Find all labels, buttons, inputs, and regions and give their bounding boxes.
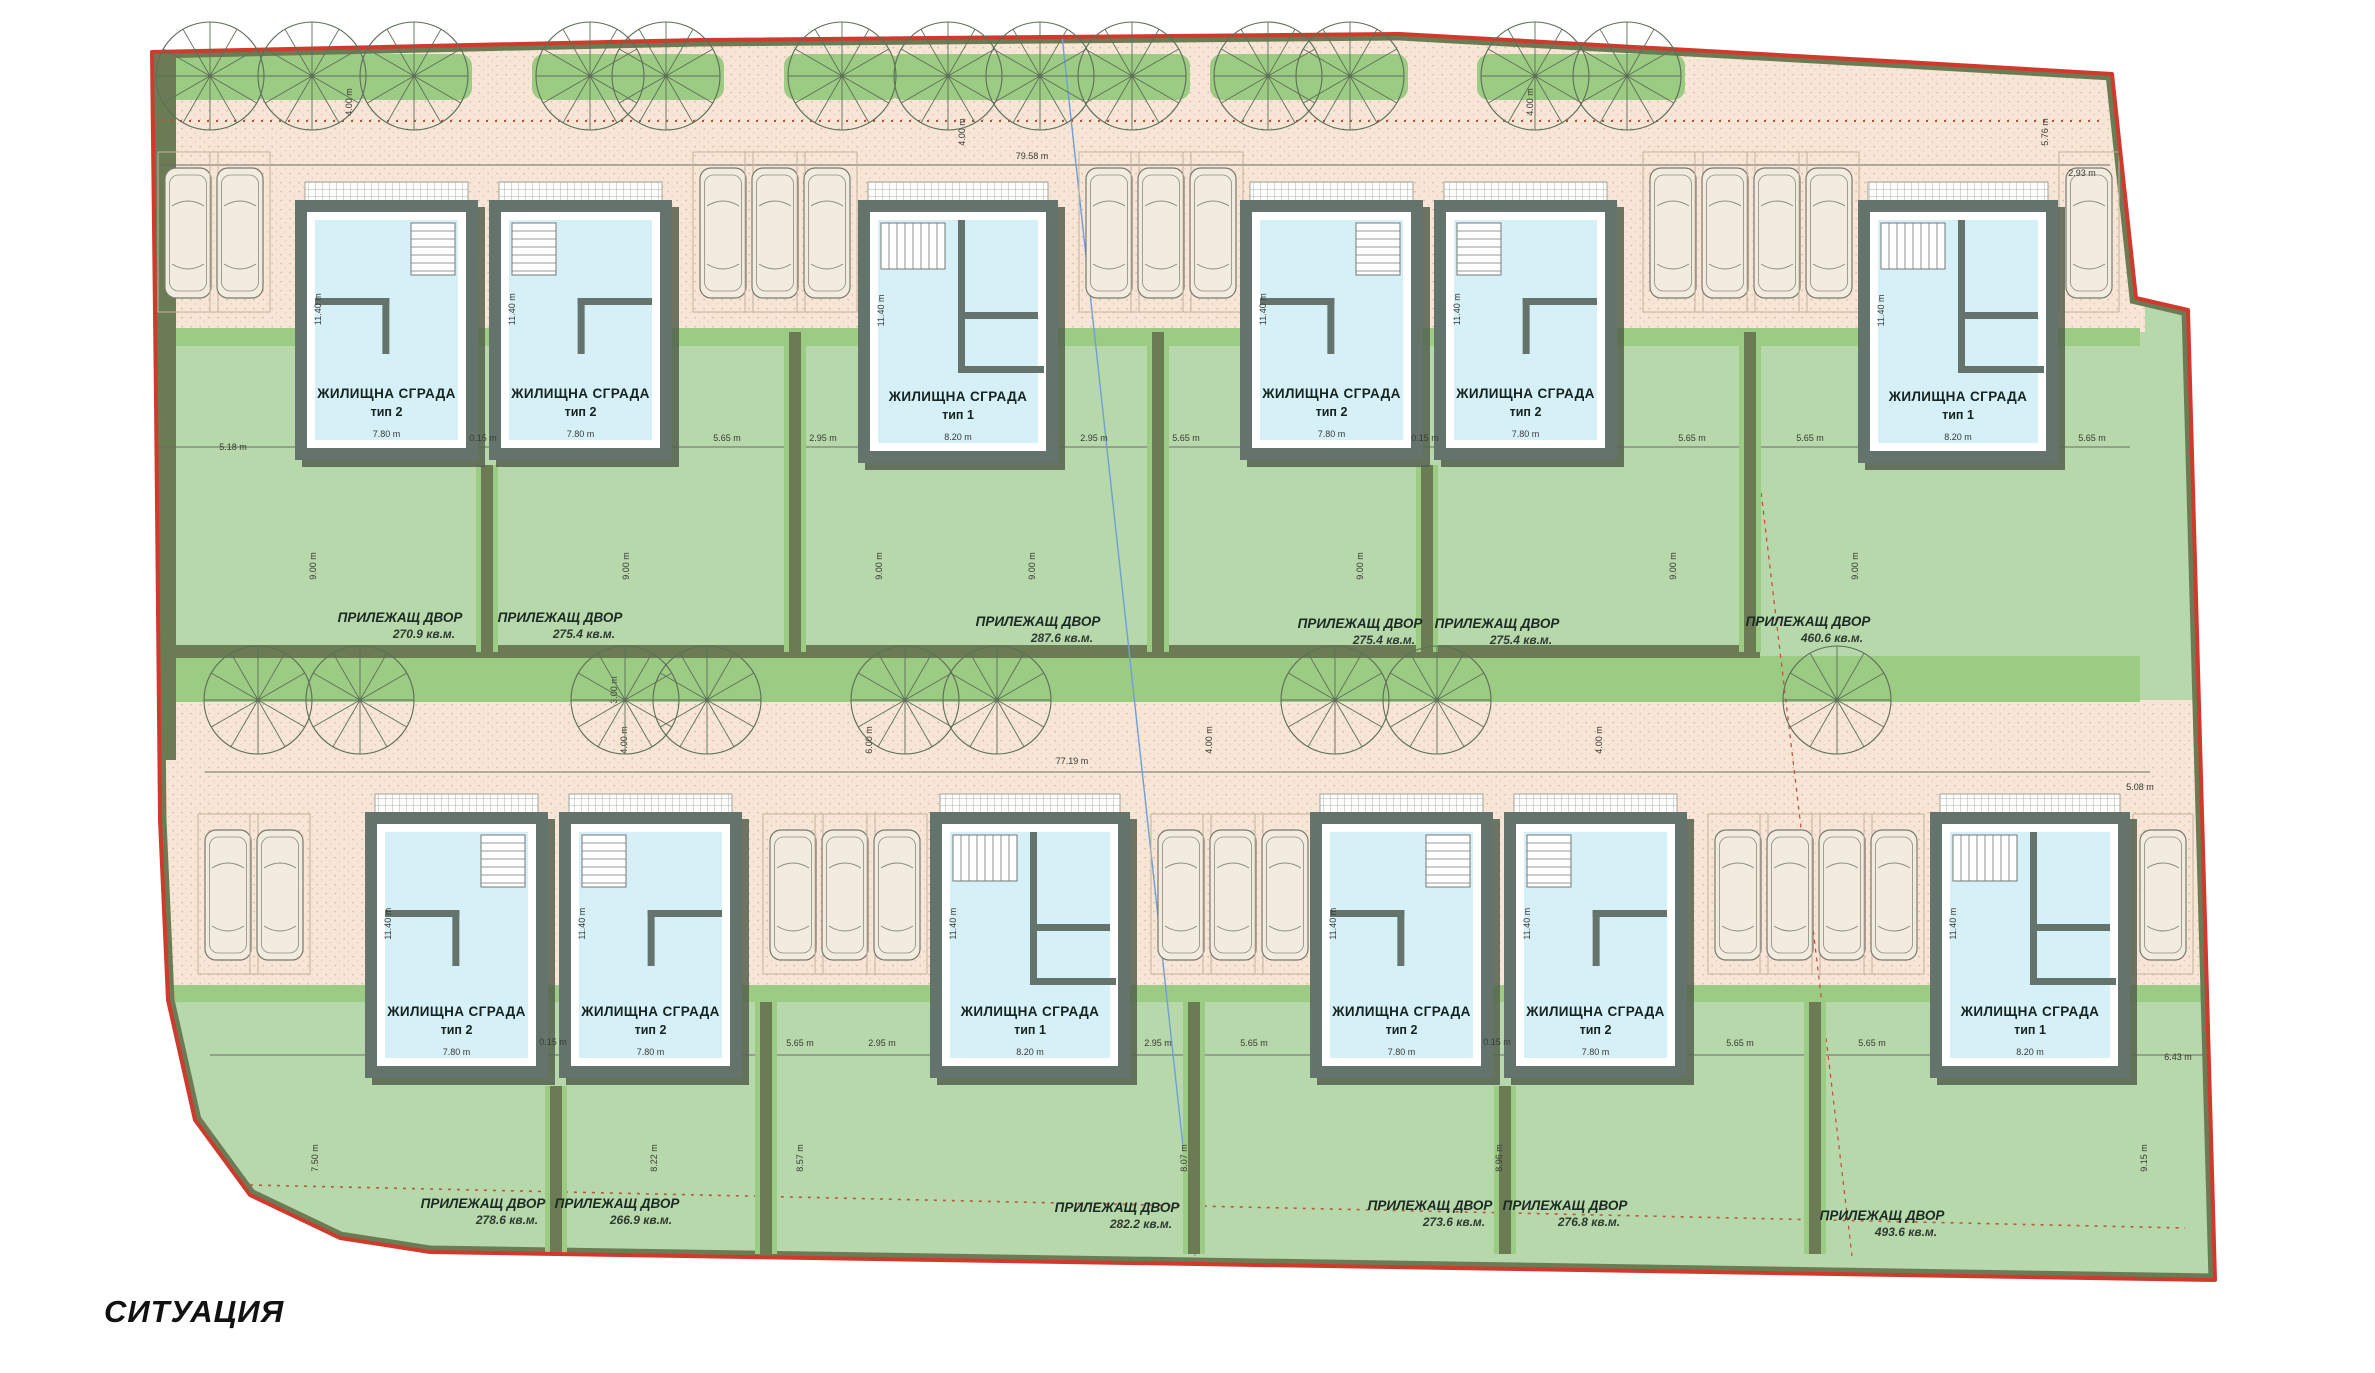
dimension-label: 2.93 m — [2068, 168, 2096, 178]
dimension-label: 9.00 m — [308, 552, 318, 580]
building-type: тип 2 — [1316, 405, 1348, 419]
building-name: ЖИЛИЩНА СГРАДА — [1261, 386, 1401, 401]
building-depth-dim: 11.40 m — [1948, 908, 1958, 940]
building-name: ЖИЛИЩНА СГРАДА — [580, 1004, 720, 1019]
building-width-dim: 7.80 m — [1388, 1047, 1416, 1057]
car-icon — [770, 830, 816, 960]
tree-icon — [360, 22, 468, 130]
dimension-label: 2.95 m — [809, 433, 837, 443]
site-plan-page: ЖИЛИЩНА СГРАДАтип 27.80 m11.40 mЖИЛИЩНА … — [0, 0, 2375, 1373]
building-type: тип 2 — [565, 405, 597, 419]
yard-area: 266.9 кв.м. — [609, 1213, 672, 1227]
yard-label: ПРИЛЕЖАЩ ДВОР — [976, 614, 1102, 629]
site-clip-group: ЖИЛИЩНА СГРАДАтип 27.80 m11.40 mЖИЛИЩНА … — [138, 30, 2215, 1280]
entrance-canopy — [1250, 182, 1413, 201]
building-name: ЖИЛИЩНА СГРАДА — [960, 1004, 1100, 1019]
tree-icon — [1573, 22, 1681, 130]
building-depth-dim: 11.40 m — [1258, 293, 1268, 325]
building: ЖИЛИЩНА СГРАДАтип 18.20 m11.40 m — [1930, 794, 2137, 1085]
yard-label: ПРИЛЕЖАЩ ДВОР — [1746, 614, 1872, 629]
entrance-canopy — [1868, 182, 2048, 201]
yard-area: 276.8 кв.м. — [1557, 1215, 1620, 1229]
building-type: тип 2 — [441, 1023, 473, 1037]
plan-title: СИТУАЦИЯ — [104, 1294, 284, 1330]
tree-icon — [306, 646, 414, 754]
dimension-label: 8.57 m — [795, 1144, 805, 1172]
yard-area: 282.2 кв.м. — [1109, 1217, 1172, 1231]
tree-icon — [1383, 646, 1491, 754]
dimension-label: 8.07 m — [1179, 1144, 1189, 1172]
dimension-label: 79.58 m — [1016, 151, 1049, 161]
building-name: ЖИЛИЩНА СГРАДА — [1455, 386, 1595, 401]
car-icon — [752, 168, 798, 298]
building-type: тип 2 — [1510, 405, 1542, 419]
car-icon — [205, 830, 251, 960]
dimension-label: 5.65 m — [1726, 1038, 1754, 1048]
dimension-label: 0.15 m — [539, 1037, 567, 1047]
tree-icon — [788, 22, 896, 130]
dimension-label: 0.15 m — [1483, 1037, 1511, 1047]
yard-area: 270.9 кв.м. — [392, 627, 455, 641]
dimension-label: 4.00 m — [1525, 88, 1535, 116]
site-plan-drawing: ЖИЛИЩНА СГРАДАтип 27.80 m11.40 mЖИЛИЩНА … — [0, 0, 2375, 1373]
yard-area: 275.4 кв.м. — [1489, 633, 1552, 647]
building-width-dim: 7.80 m — [1582, 1047, 1610, 1057]
car-icon — [1210, 830, 1256, 960]
car-icon — [1650, 168, 1696, 298]
yard-label: ПРИЛЕЖАЩ ДВОР — [1368, 1198, 1494, 1213]
yard-label: ПРИЛЕЖАЩ ДВОР — [1820, 1208, 1946, 1223]
building-name: ЖИЛИЩНА СГРАДА — [1331, 1004, 1471, 1019]
building: ЖИЛИЩНА СГРАДАтип 27.80 m11.40 m — [365, 794, 555, 1085]
dimension-label: 9.00 m — [1355, 552, 1365, 580]
building-depth-dim: 11.40 m — [1876, 295, 1886, 327]
building-width-dim: 7.80 m — [443, 1047, 471, 1057]
tree-icon — [258, 22, 366, 130]
dimension-label: 6.43 m — [2164, 1052, 2192, 1062]
entrance-canopy — [868, 182, 1048, 201]
yard-label: ПРИЛЕЖАЩ ДВОР — [555, 1196, 681, 1211]
car-icon — [217, 168, 263, 298]
building-width-dim: 8.20 m — [2016, 1047, 2044, 1057]
building-width-dim: 8.20 m — [944, 432, 972, 442]
tree-icon — [156, 22, 264, 130]
tree-icon — [1281, 646, 1389, 754]
dimension-label: 4.00 m — [957, 118, 967, 146]
building-type: тип 1 — [942, 408, 974, 422]
building-width-dim: 7.80 m — [1512, 429, 1540, 439]
entrance-canopy — [305, 182, 468, 201]
yard-label: ПРИЛЕЖАЩ ДВОР — [498, 610, 624, 625]
building-type: тип 2 — [635, 1023, 667, 1037]
building-depth-dim: 11.40 m — [1328, 908, 1338, 940]
car-icon — [2066, 168, 2112, 298]
dimension-label: 2.95 m — [868, 1038, 896, 1048]
building-type: тип 1 — [1942, 408, 1974, 422]
building-name: ЖИЛИЩНА СГРАДА — [1888, 389, 2028, 404]
tree-icon — [612, 22, 720, 130]
entrance-canopy — [1514, 794, 1677, 813]
car-icon — [257, 830, 303, 960]
building-type: тип 1 — [2014, 1023, 2046, 1037]
car-icon — [804, 168, 850, 298]
dimension-label: 9.00 m — [1027, 552, 1037, 580]
dimension-label: 5.65 m — [1240, 1038, 1268, 1048]
building-depth-dim: 11.40 m — [1522, 908, 1532, 940]
tree-icon — [943, 646, 1051, 754]
entrance-canopy — [1320, 794, 1483, 813]
dimension-label: 0.15 m — [1411, 433, 1439, 443]
yard-area: 275.4 кв.м. — [552, 627, 615, 641]
entrance-canopy — [940, 794, 1120, 813]
tree-icon — [204, 646, 312, 754]
car-icon — [1871, 830, 1917, 960]
dimension-label: 9.00 m — [1668, 552, 1678, 580]
car-icon — [1138, 168, 1184, 298]
dimension-label: 4.00 m — [1594, 726, 1604, 754]
building: ЖИЛИЩНА СГРАДАтип 18.20 m11.40 m — [930, 794, 1137, 1085]
building-name: ЖИЛИЩНА СГРАДА — [888, 389, 1028, 404]
building-depth-dim: 11.40 m — [507, 293, 517, 325]
dimension-label: 5.18 m — [219, 442, 247, 452]
entrance-canopy — [1444, 182, 1607, 201]
car-icon — [1819, 830, 1865, 960]
building: ЖИЛИЩНА СГРАДАтип 27.80 m11.40 m — [1310, 794, 1500, 1085]
dimension-label: 9.00 m — [1850, 552, 1860, 580]
dimension-label: 4.00 m — [619, 726, 629, 754]
yard-area: 278.6 кв.м. — [475, 1213, 538, 1227]
dimension-label: 5.65 m — [1172, 433, 1200, 443]
building-width-dim: 8.20 m — [1016, 1047, 1044, 1057]
building-name: ЖИЛИЩНА СГРАДА — [1960, 1004, 2100, 1019]
dimension-label: 5.08 m — [2126, 782, 2154, 792]
building-name: ЖИЛИЩНА СГРАДА — [386, 1004, 526, 1019]
yard-area: 460.6 кв.м. — [1800, 631, 1863, 645]
dimension-label: 2.95 m — [1144, 1038, 1172, 1048]
entrance-canopy — [375, 794, 538, 813]
car-icon — [874, 830, 920, 960]
dimension-label: 4.00 m — [1204, 726, 1214, 754]
tree-icon — [1783, 646, 1891, 754]
building-name: ЖИЛИЩНА СГРАДА — [1525, 1004, 1665, 1019]
car-icon — [165, 168, 211, 298]
dimension-label: 5.65 m — [786, 1038, 814, 1048]
dimension-label: 7.50 m — [310, 1144, 320, 1172]
car-icon — [1715, 830, 1761, 960]
building: ЖИЛИЩНА СГРАДАтип 27.80 m11.40 m — [1504, 794, 1694, 1085]
building-width-dim: 7.80 m — [373, 429, 401, 439]
building: ЖИЛИЩНА СГРАДАтип 27.80 m11.40 m — [489, 182, 679, 467]
dimension-label: 5.65 m — [1678, 433, 1706, 443]
yard-label: ПРИЛЕЖАЩ ДВОР — [1503, 1198, 1629, 1213]
car-icon — [1754, 168, 1800, 298]
dimension-label: 5.65 m — [1796, 433, 1824, 443]
car-icon — [1158, 830, 1204, 960]
car-icon — [700, 168, 746, 298]
entrance-canopy — [499, 182, 662, 201]
building-depth-dim: 11.40 m — [876, 295, 886, 327]
yard-label: ПРИЛЕЖАЩ ДВОР — [338, 610, 464, 625]
building-name: ЖИЛИЩНА СГРАДА — [510, 386, 650, 401]
building-type: тип 2 — [371, 405, 403, 419]
building-depth-dim: 11.40 m — [577, 908, 587, 940]
building: ЖИЛИЩНА СГРАДАтип 18.20 m11.40 m — [858, 182, 1065, 470]
dimension-label: 9.15 m — [2139, 1144, 2149, 1172]
yard-area: 287.6 кв.м. — [1030, 631, 1093, 645]
dimension-label: 77.19 m — [1056, 756, 1089, 766]
tree-icon — [653, 646, 761, 754]
car-icon — [1806, 168, 1852, 298]
car-icon — [1767, 830, 1813, 960]
building-width-dim: 7.80 m — [1318, 429, 1346, 439]
building-type: тип 2 — [1386, 1023, 1418, 1037]
dimension-label: 5.76 m — [2040, 118, 2050, 146]
yard-label: ПРИЛЕЖАЩ ДВОР — [421, 1196, 547, 1211]
dimension-label: 9.00 m — [874, 552, 884, 580]
building-width-dim: 7.80 m — [637, 1047, 665, 1057]
yard-label: ПРИЛЕЖАЩ ДВОР — [1298, 616, 1424, 631]
yard-label: ПРИЛЕЖАЩ ДВОР — [1055, 1200, 1181, 1215]
yard-label: ПРИЛЕЖАЩ ДВОР — [1435, 616, 1561, 631]
building-type: тип 2 — [1580, 1023, 1612, 1037]
car-icon — [1086, 168, 1132, 298]
yard-area: 273.6 кв.м. — [1422, 1215, 1485, 1229]
tree-icon — [1078, 22, 1186, 130]
car-icon — [1702, 168, 1748, 298]
building: ЖИЛИЩНА СГРАДАтип 27.80 m11.40 m — [295, 182, 485, 467]
car-icon — [1190, 168, 1236, 298]
building-width-dim: 8.20 m — [1944, 432, 1972, 442]
building: ЖИЛИЩНА СГРАДАтип 18.20 m11.40 m — [1858, 182, 2065, 470]
building-depth-dim: 11.40 m — [383, 908, 393, 940]
building-depth-dim: 11.40 m — [313, 293, 323, 325]
car-icon — [822, 830, 868, 960]
building: ЖИЛИЩНА СГРАДАтип 27.80 m11.40 m — [1240, 182, 1430, 467]
building: ЖИЛИЩНА СГРАДАтип 27.80 m11.40 m — [1434, 182, 1624, 467]
entrance-canopy — [1940, 794, 2120, 813]
yard-area: 275.4 кв.м. — [1352, 633, 1415, 647]
dimension-label: 2.95 m — [1080, 433, 1108, 443]
building-width-dim: 7.80 m — [567, 429, 595, 439]
building-name: ЖИЛИЩНА СГРАДА — [316, 386, 456, 401]
building-depth-dim: 11.40 m — [948, 908, 958, 940]
yard-area: 493.6 кв.м. — [1874, 1225, 1937, 1239]
car-icon — [2140, 830, 2186, 960]
dimension-label: 0.15 m — [469, 433, 497, 443]
car-icon — [1262, 830, 1308, 960]
dimension-label: 5.65 m — [713, 433, 741, 443]
building-type: тип 1 — [1014, 1023, 1046, 1037]
dimension-label: 5.65 m — [2078, 433, 2106, 443]
building-depth-dim: 11.40 m — [1452, 293, 1462, 325]
dimension-label: 9.00 m — [621, 552, 631, 580]
entrance-canopy — [569, 794, 732, 813]
building: ЖИЛИЩНА СГРАДАтип 27.80 m11.40 m — [559, 794, 749, 1085]
tree-icon — [1296, 22, 1404, 130]
dimension-label: 6.74 m — [138, 1030, 166, 1040]
dimension-label: 5.65 m — [1858, 1038, 1886, 1048]
dimension-label: 8.96 m — [1494, 1144, 1504, 1172]
dimension-label: 8.22 m — [649, 1144, 659, 1172]
